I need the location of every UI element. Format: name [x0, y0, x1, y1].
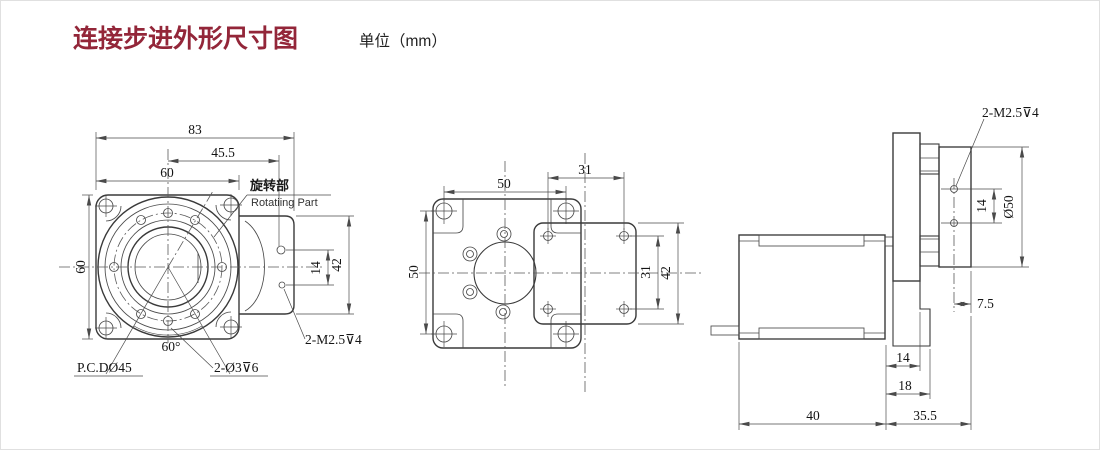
front-dimensions: 83 45.5 60 60 14 42: [73, 122, 354, 339]
wire-tab: [711, 326, 739, 335]
front-view: 83 45.5 60 60 14 42 旋转部 Rotatiing Part P…: [59, 122, 362, 376]
back-dimensions: 50 31 50 31 42: [406, 162, 684, 334]
angle-label: 60°: [162, 339, 181, 354]
unit-label: 单位（mm）: [359, 32, 447, 50]
pcd-label: P.C.DØ45: [77, 360, 132, 375]
rotating-part-label-cn: 旋转部: [249, 178, 289, 193]
pilot-step: [885, 237, 893, 246]
flange-plate: [893, 133, 920, 281]
page-title: 连接步进外形尺寸图: [73, 24, 298, 53]
dim-45-5: 45.5: [211, 145, 235, 160]
rotating-part-label-en: Rotatiing Part: [251, 197, 318, 209]
dim-14-holes: 14: [974, 199, 989, 213]
dim-7-5: 7.5: [977, 296, 994, 311]
dim-35-5: 35.5: [913, 408, 937, 423]
dim-40: 40: [806, 408, 820, 423]
dim-60-top: 60: [160, 165, 174, 180]
flange-step-bottom: [920, 236, 939, 266]
dim-31-top: 31: [578, 162, 592, 177]
dim-83: 83: [188, 122, 202, 137]
dim-42-right: 42: [658, 266, 673, 280]
motor-body: [739, 235, 885, 339]
dim-14-bottom: 14: [896, 350, 910, 365]
dim-14-tab: 14: [308, 261, 323, 275]
dim-50-left: 50: [406, 265, 421, 279]
rotating-tab-outline: [239, 216, 294, 314]
holes-label: 2-Ø3⊽6: [214, 360, 259, 375]
side-dimensions: 2-M2.5⊽4 14 Ø50 7.5 14 18 40 35.5: [739, 105, 1039, 430]
boss-d50: [939, 147, 971, 267]
tab-hole-bottom: [279, 282, 285, 288]
adapter-holes: [540, 228, 632, 317]
dim-d50: Ø50: [1001, 195, 1016, 218]
tap-label-front: 2-M2.5⊽4: [305, 332, 362, 347]
motor-rail-bottom: [759, 328, 864, 339]
tab-hole-top: [277, 246, 285, 254]
tap-label-side: 2-M2.5⊽4: [982, 105, 1039, 120]
drawing-page: 连接步进外形尺寸图 单位（mm）: [0, 0, 1100, 450]
dim-60-left: 60: [73, 260, 88, 274]
bracket-arm: [893, 281, 930, 346]
flange-step-top: [920, 144, 939, 174]
back-plate-outline: [433, 199, 581, 348]
back-view: 50 31 50 31 42: [406, 153, 701, 393]
motor-rail-top: [759, 235, 864, 246]
rotating-tab-curve: [245, 221, 265, 311]
dim-50-top: 50: [497, 176, 511, 191]
dim-18: 18: [898, 378, 912, 393]
dim-31-right: 31: [638, 265, 653, 279]
side-view: 2-M2.5⊽4 14 Ø50 7.5 14 18 40 35.5: [711, 105, 1039, 430]
dim-42-tab: 42: [329, 258, 344, 272]
dimension-drawing: 连接步进外形尺寸图 单位（mm）: [1, 1, 1100, 450]
